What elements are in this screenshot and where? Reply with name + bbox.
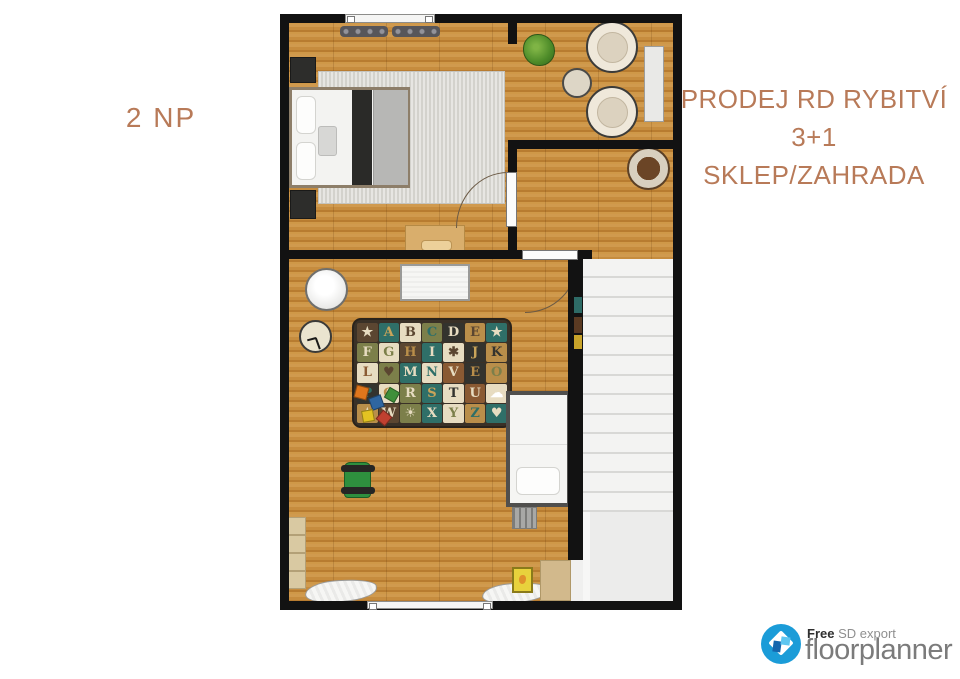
wall-lounge-hall	[508, 140, 682, 149]
rug-tile: ♥	[379, 363, 400, 382]
logo-house-light-face	[780, 636, 790, 645]
nightstand	[290, 57, 316, 83]
wall-children-top-stub	[578, 250, 592, 259]
stair-tread	[583, 278, 673, 297]
floorplan-export-page: { "labels": { "floor": "2 NP", "title1":…	[0, 0, 960, 679]
rug-tile: C	[422, 323, 443, 342]
wall-shelf-item	[574, 297, 582, 313]
bed-runner	[352, 90, 373, 185]
stair-tread	[583, 493, 673, 512]
bed-cushion	[318, 126, 337, 156]
nightstand	[290, 190, 316, 219]
listing-title-line3: SKLEP/ZAHRADA	[668, 156, 960, 194]
door-bedroom	[506, 172, 517, 227]
changing-mat	[400, 264, 470, 301]
wall-top	[280, 14, 682, 23]
stair-tread	[583, 395, 673, 414]
listing-title-line1: PRODEJ RD RYBITVÍ	[668, 80, 960, 118]
staircase	[583, 259, 673, 512]
rug-tile: N	[422, 363, 443, 382]
rug-tile: ✱	[443, 343, 464, 362]
rug-tile: M	[400, 363, 421, 382]
armchair	[586, 21, 638, 73]
rug-tile: ★	[357, 323, 378, 342]
brand-name: floorplanner	[805, 634, 952, 667]
rug-tile: X	[422, 404, 443, 423]
wall-bedroom-right-stub	[508, 14, 517, 44]
rug-tile: R	[400, 384, 421, 403]
bed-pillow	[296, 96, 316, 134]
sideboard	[644, 46, 664, 122]
bed-pillow	[516, 467, 560, 495]
rug-tile: ☁	[486, 384, 507, 403]
stair-tread	[583, 434, 673, 453]
single-bed	[506, 391, 571, 507]
rug-tile: ♥	[486, 404, 507, 423]
stair-tread	[583, 298, 673, 317]
bed-pillow	[296, 142, 316, 180]
bed-ladder	[512, 507, 537, 529]
floorplanner-logo-icon	[761, 624, 801, 664]
rug-tile: ☀	[400, 404, 421, 423]
rug-tile: E	[465, 323, 486, 342]
wall-bedroom-right-a	[508, 140, 517, 174]
rug-tile: F	[357, 343, 378, 362]
floor-plan: ★ABCDE★FGHI✱JKL♥MNVEOPQRSTU☁★W☀XYZ♥	[280, 14, 682, 610]
stair-tread	[583, 356, 673, 375]
stair-tread	[583, 376, 673, 395]
rug-tile: H	[400, 343, 421, 362]
pouf	[305, 268, 348, 311]
listing-title: PRODEJ RD RYBITVÍ 3+1 SKLEP/ZAHRADA	[668, 80, 960, 194]
rug-tile: U	[465, 384, 486, 403]
rug-tile: O	[486, 363, 507, 382]
double-bed	[289, 87, 410, 188]
stair-tread	[583, 473, 673, 492]
rug-tile: J	[465, 343, 486, 362]
wall-shelf-item	[574, 317, 582, 333]
rug-tile: V	[443, 363, 464, 382]
listing-title-line2: 3+1	[668, 118, 960, 156]
bookshelf	[287, 517, 306, 589]
wall-left	[280, 14, 289, 610]
stair-landing	[578, 512, 673, 601]
rug-tile: G	[379, 343, 400, 362]
rug-tile: Y	[443, 404, 464, 423]
rug-tile: E	[465, 363, 486, 382]
rug-tile: D	[443, 323, 464, 342]
stair-tread	[583, 337, 673, 356]
stair-tread	[583, 454, 673, 473]
bed-blanket	[373, 90, 409, 185]
rug-tile: I	[422, 343, 443, 362]
wall-children-top	[280, 250, 522, 259]
window-bottom	[367, 601, 493, 609]
rug-tile: ★	[486, 323, 507, 342]
wall-right	[673, 14, 682, 610]
window-top	[345, 14, 435, 23]
radiator-icon	[340, 26, 388, 37]
rug-tile: T	[443, 384, 464, 403]
storage-box	[540, 560, 571, 601]
kart-toy	[344, 462, 371, 498]
rug-tile: B	[400, 323, 421, 342]
stair-tread	[583, 259, 673, 278]
rug-tile: S	[422, 384, 443, 403]
side-table	[562, 68, 592, 98]
armchair	[586, 86, 638, 138]
stair-tread	[583, 415, 673, 434]
radiator-icon	[392, 26, 440, 37]
rug-tile: L	[357, 363, 378, 382]
floor-label: 2 NP	[96, 102, 226, 134]
wall-shelf-item	[574, 335, 582, 349]
clock-icon	[299, 320, 332, 353]
rattan-chair	[627, 147, 670, 190]
stair-tread	[583, 317, 673, 336]
rug-tile: Z	[465, 404, 486, 423]
toy-block	[361, 409, 375, 423]
door-children	[522, 250, 578, 260]
plant-icon	[523, 34, 555, 66]
toy-box	[512, 567, 533, 593]
rug-tile: K	[486, 343, 507, 362]
alphabet-rug: ★ABCDE★FGHI✱JKL♥MNVEOPQRSTU☁★W☀XYZ♥	[352, 318, 512, 428]
rug-tile: A	[379, 323, 400, 342]
